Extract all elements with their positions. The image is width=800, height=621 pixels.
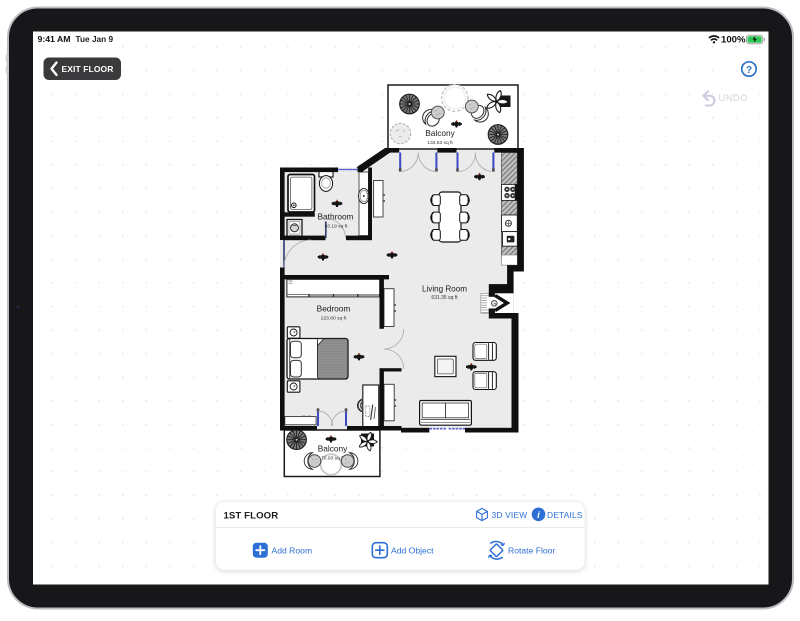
svg-text:631.35 sq ft: 631.35 sq ft — [431, 295, 458, 301]
svg-text:Tue Jan 9: Tue Jan 9 — [76, 34, 114, 44]
svg-text:Bedroom: Bedroom — [317, 303, 351, 313]
svg-text:EXIT FLOOR: EXIT FLOOR — [62, 64, 114, 74]
svg-text:?: ? — [746, 65, 752, 76]
svg-text:i: i — [537, 510, 540, 521]
svg-text:Rotate Floor: Rotate Floor — [508, 545, 555, 555]
svg-text:Add Object: Add Object — [391, 545, 434, 555]
svg-text:1ST FLOOR: 1ST FLOOR — [224, 511, 279, 522]
svg-text:9:41 AM: 9:41 AM — [38, 34, 71, 44]
svg-text:Add Room: Add Room — [272, 545, 313, 555]
svg-text:Bathroom: Bathroom — [318, 212, 354, 222]
svg-text:63.19 sq ft: 63.19 sq ft — [325, 224, 348, 230]
svg-text:DETAILS: DETAILS — [547, 510, 583, 520]
svg-text:100%: 100% — [721, 34, 746, 45]
svg-text:Balcony: Balcony — [318, 444, 348, 454]
svg-text:UNDO: UNDO — [719, 93, 748, 103]
svg-text:Balcony: Balcony — [425, 128, 455, 138]
svg-text:3D VIEW: 3D VIEW — [492, 510, 528, 520]
svg-text:133.53 sq ft: 133.53 sq ft — [427, 140, 453, 146]
svg-text:Living Room: Living Room — [422, 284, 467, 293]
svg-text:223.80 sq ft: 223.80 sq ft — [321, 315, 347, 321]
